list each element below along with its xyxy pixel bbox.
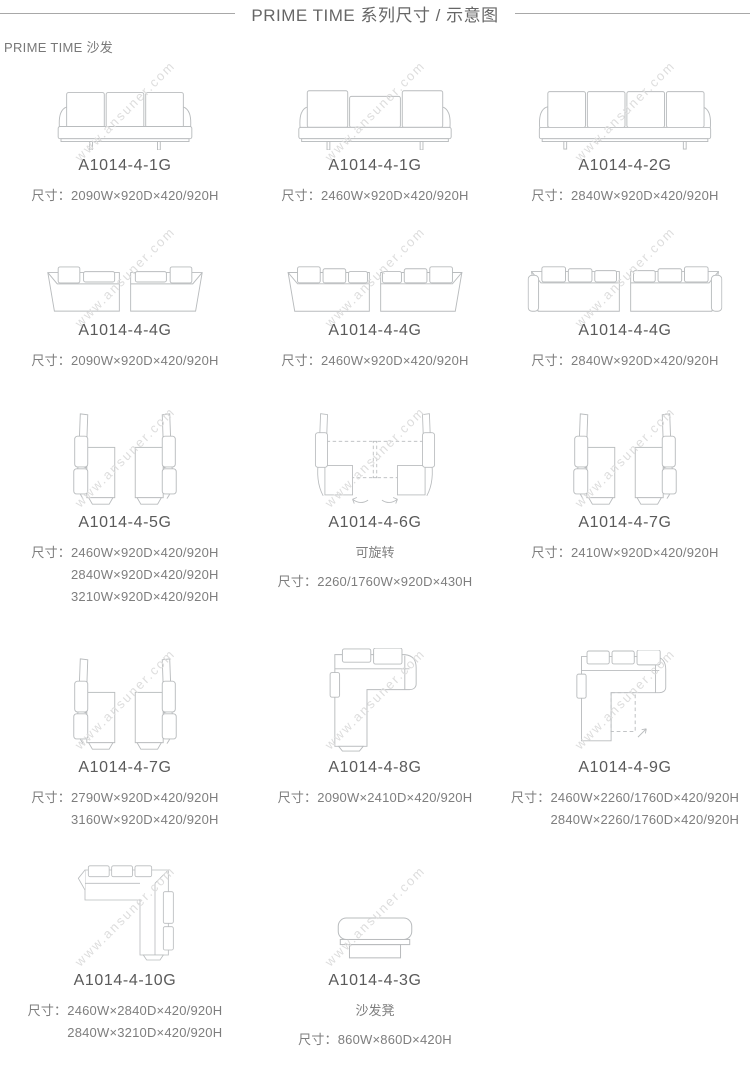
product-cell: www.ansuner.com A1014-4-7G 尺寸： 2790W×920…	[0, 642, 250, 831]
dimension-value: 2840W×3210D×420/920H	[67, 1022, 222, 1044]
dimension-prefix: 尺寸：	[278, 787, 318, 809]
dimension-prefix: 尺寸：	[511, 787, 551, 831]
dimension-prefix: 尺寸：	[31, 542, 71, 608]
product-cell: www.ansuner.com A1014-4-3G 沙发凳 尺寸： 860W×…	[250, 863, 500, 1051]
product-model: A1014-4-7G	[0, 759, 250, 777]
ottoman-front-view-drawing: www.ansuner.com	[250, 863, 500, 965]
corner-sofa-rotatable-chaise-drawing: www.ansuner.com	[500, 642, 750, 752]
dimension-prefix: 尺寸：	[31, 350, 71, 372]
sofa-front-view-3-cushions-drawing: www.ansuner.com	[0, 68, 250, 150]
product-cell: www.ansuner.com A1014-4-5G 尺寸： 2460W×920…	[0, 402, 250, 608]
product-cell: www.ansuner.com A1014-4-9G 尺寸： 2460W×226…	[500, 642, 750, 831]
product-model: A1014-4-4G	[250, 322, 500, 340]
product-cell: www.ansuner.com A1014-4-1G 尺寸： 2090W×920…	[0, 68, 250, 207]
dimension-value: 2790W×920D×420/920H	[71, 787, 219, 809]
product-dimensions: 尺寸： 2410W×920D×420/920H	[531, 542, 718, 564]
dimension-value: 3160W×920D×420/920H	[71, 809, 219, 831]
dimension-value: 860W×860D×420H	[338, 1029, 452, 1051]
product-dimensions: 尺寸： 2260/1760W×920D×430H	[278, 571, 473, 593]
dimension-value: 2090W×2410D×420/920H	[317, 787, 472, 809]
grid-row: www.ansuner.com A1014-4-1G 尺寸： 2090W×920…	[0, 68, 750, 207]
sofa-front-view-wide-center-drawing: www.ansuner.com	[250, 68, 500, 150]
product-dimensions: 尺寸： 2460W×920D×420/920H	[281, 350, 468, 372]
dimension-prefix: 尺寸：	[278, 571, 318, 593]
product-cell: www.ansuner.com A1014-4-4G 尺寸： 2840W×920…	[500, 235, 750, 372]
product-dimensions: 尺寸： 2460W×2260/1760D×420/920H 2840W×2260…	[511, 787, 739, 831]
dimension-prefix: 尺寸：	[298, 1029, 338, 1051]
product-dimensions: 尺寸： 2090W×2410D×420/920H	[278, 787, 473, 809]
dimension-prefix: 尺寸：	[531, 542, 571, 564]
product-cell: www.ansuner.com A1014-4-6G 可旋转 尺寸： 2260/…	[250, 402, 500, 608]
product-cell: www.ansuner.com A1014-4-10G 尺寸： 2460W×28…	[0, 863, 250, 1051]
dimension-value: 2460W×920D×420/920H	[71, 542, 219, 564]
sofa-pair-top-view-drawing: www.ansuner.com	[0, 235, 250, 315]
dimension-prefix: 尺寸：	[31, 185, 71, 207]
product-cell: www.ansuner.com A1014-4-4G 尺寸： 2460W×920…	[250, 235, 500, 372]
sofa-pair-top-view-drawing: www.ansuner.com	[250, 235, 500, 315]
product-grid: www.ansuner.com A1014-4-1G 尺寸： 2090W×920…	[0, 68, 750, 1051]
product-model: A1014-4-7G	[500, 514, 750, 532]
dimension-prefix: 尺寸：	[281, 350, 321, 372]
chaise-pair-side-view-drawing: www.ansuner.com	[500, 402, 750, 507]
product-cell: www.ansuner.com A1014-4-7G 尺寸： 2410W×920…	[500, 402, 750, 608]
dimension-prefix: 尺寸：	[531, 185, 571, 207]
chaise-pair-side-view-drawing: www.ansuner.com	[0, 642, 250, 752]
product-model: A1014-4-3G	[250, 972, 500, 990]
product-model: A1014-4-1G	[0, 157, 250, 175]
dimension-prefix: 尺寸：	[281, 185, 321, 207]
product-dimensions: 尺寸： 2460W×2840D×420/920H 2840W×3210D×420…	[28, 1000, 223, 1044]
dimension-value: 2460W×920D×420/920H	[321, 350, 469, 372]
dimension-prefix: 尺寸：	[31, 787, 71, 831]
product-dimensions: 尺寸： 2840W×920D×420/920H	[531, 185, 718, 207]
page-header: PRIME TIME 系列尺寸 / 示意图	[0, 0, 750, 26]
product-dimensions: 尺寸： 2090W×920D×420/920H	[31, 350, 218, 372]
page-title: PRIME TIME 系列尺寸 / 示意图	[235, 1, 514, 26]
product-dimensions: 尺寸： 2460W×920D×420/920H	[281, 185, 468, 207]
title-rule-right	[515, 13, 750, 14]
dimension-prefix: 尺寸：	[28, 1000, 68, 1044]
product-model: A1014-4-10G	[0, 972, 250, 990]
grid-row: www.ansuner.com A1014-4-5G 尺寸： 2460W×920…	[0, 402, 750, 608]
product-cell: www.ansuner.com A1014-4-2G 尺寸： 2840W×920…	[500, 68, 750, 207]
product-cell: www.ansuner.com A1014-4-1G 尺寸： 2460W×920…	[250, 68, 500, 207]
corner-sofa-right-chaise-drawing: www.ansuner.com	[0, 863, 250, 965]
series-subtitle: PRIME TIME 沙发	[4, 37, 750, 56]
dimension-prefix: 尺寸：	[531, 350, 571, 372]
product-model: A1014-4-4G	[500, 322, 750, 340]
product-model: A1014-4-6G	[250, 514, 500, 532]
product-dimensions: 尺寸： 2790W×920D×420/920H 3160W×920D×420/9…	[31, 787, 218, 831]
product-model: A1014-4-5G	[0, 514, 250, 532]
product-note: 可旋转	[250, 542, 500, 561]
dimension-value: 3210W×920D×420/920H	[71, 586, 219, 608]
product-model: A1014-4-8G	[250, 759, 500, 777]
dimension-value: 2840W×920D×420/920H	[71, 564, 219, 586]
dimension-value: 2090W×920D×420/920H	[71, 185, 219, 207]
product-dimensions: 尺寸： 2460W×920D×420/920H 2840W×920D×420/9…	[31, 542, 218, 608]
product-model: A1014-4-9G	[500, 759, 750, 777]
sofa-pair-top-view-drawing: www.ansuner.com	[500, 235, 750, 315]
title-rule-left	[0, 13, 235, 14]
dimension-value: 2460W×2840D×420/920H	[67, 1000, 222, 1022]
dimension-value: 2460W×2260/1760D×420/920H	[551, 787, 740, 809]
dimension-value: 2090W×920D×420/920H	[71, 350, 219, 372]
product-note: 沙发凳	[250, 1000, 500, 1019]
dimension-value: 2840W×920D×420/920H	[571, 185, 719, 207]
product-model: A1014-4-1G	[250, 157, 500, 175]
product-dimensions: 尺寸： 2840W×920D×420/920H	[531, 350, 718, 372]
dimension-value: 2260/1760W×920D×430H	[317, 571, 472, 593]
product-dimensions: 尺寸： 860W×860D×420H	[298, 1029, 452, 1051]
grid-row: www.ansuner.com A1014-4-7G 尺寸： 2790W×920…	[0, 642, 750, 831]
chaise-pair-side-view-drawing: www.ansuner.com	[0, 402, 250, 507]
product-cell: www.ansuner.com A1014-4-4G 尺寸： 2090W×920…	[0, 235, 250, 372]
product-model: A1014-4-2G	[500, 157, 750, 175]
sofa-front-view-4-cushions-drawing: www.ansuner.com	[500, 68, 750, 150]
corner-sofa-top-view-drawing: www.ansuner.com	[250, 642, 500, 752]
product-cell: www.ansuner.com A1014-4-8G 尺寸： 2090W×241…	[250, 642, 500, 831]
dimension-value: 2840W×920D×420/920H	[571, 350, 719, 372]
empty-cell	[500, 863, 750, 1051]
dimension-value: 2840W×2260/1760D×420/920H	[551, 809, 740, 831]
grid-row: www.ansuner.com A1014-4-4G 尺寸： 2090W×920…	[0, 235, 750, 372]
product-model: A1014-4-4G	[0, 322, 250, 340]
dimension-value: 2460W×920D×420/920H	[321, 185, 469, 207]
rotatable-chaise-pair-drawing: www.ansuner.com	[250, 402, 500, 507]
product-dimensions: 尺寸： 2090W×920D×420/920H	[31, 185, 218, 207]
grid-row: www.ansuner.com A1014-4-10G 尺寸： 2460W×28…	[0, 863, 750, 1051]
dimension-value: 2410W×920D×420/920H	[571, 542, 719, 564]
